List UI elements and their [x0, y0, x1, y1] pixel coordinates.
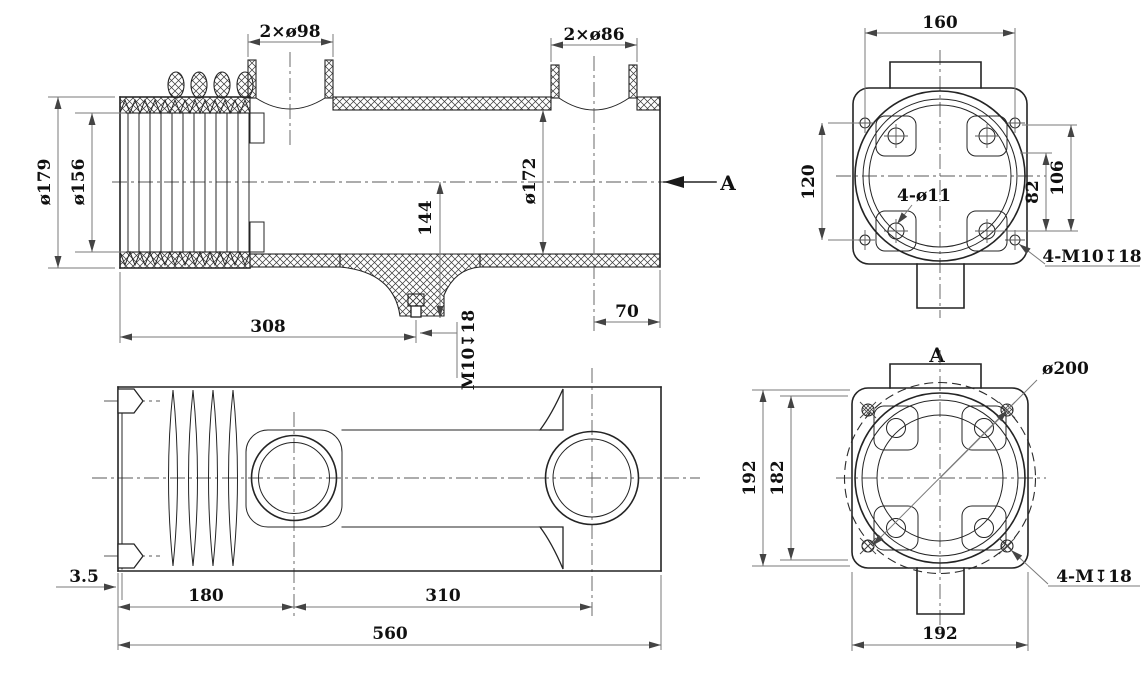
flange-bottom-stub [917, 264, 964, 308]
dim-bellows-length: 180 [188, 586, 224, 606]
dim-bore-dia: ø172 [520, 158, 540, 205]
section-arrow: A [664, 171, 736, 195]
dim-outer-dia: ø179 [35, 159, 55, 206]
drain-plug-stem [411, 306, 421, 317]
label-section-tapped: 4-M↧18 [1056, 567, 1132, 587]
dim-outer-height: 192 [740, 460, 760, 496]
bellows-loops [168, 72, 253, 98]
dim-drain-position: 308 [250, 317, 286, 337]
drain-funnel [340, 254, 480, 317]
dim-port1: 2×ø98 [259, 22, 320, 42]
inner-window-bottom [250, 222, 264, 252]
label-through-holes: 4-ø11 [897, 186, 951, 206]
flange-top-tab [890, 62, 981, 88]
dim-root-dia: ø156 [69, 159, 89, 206]
front-section-view: A 2×ø98 2×ø86 ø179 ø156 ø172 144 [35, 22, 736, 390]
flange-dimensions: 160 120 82 106 4-ø11 4-M10↧18 [799, 13, 1142, 267]
chamfer-wedge-top [540, 389, 563, 430]
dim-end-offset: 70 [615, 302, 639, 322]
port-1 [248, 52, 333, 148]
inner-window-top [250, 113, 264, 143]
flange-view: 160 120 82 106 4-ø11 4-M10↧18 [799, 13, 1142, 318]
inner-hole-tabs [876, 116, 1007, 251]
dim-drain-thread: M10↧18 [459, 310, 479, 390]
dim-hole-spacing-v: 120 [799, 164, 819, 200]
top-view-dimensions: 3.5 180 310 560 [56, 567, 661, 650]
dim-section-width: 192 [922, 624, 958, 644]
drawing-canvas: A 2×ø98 2×ø86 ø179 ø156 ø172 144 [0, 0, 1146, 683]
left-key-bottom [118, 544, 143, 568]
top-body [118, 387, 661, 571]
dim-bolt-circle: ø200 [1042, 359, 1089, 379]
front-dimensions: 2×ø98 2×ø86 ø179 ø156 ø172 144 308 70 [35, 22, 660, 390]
dim-spacing-106: 106 [1048, 160, 1068, 196]
chamfer-wedge-bottom [540, 527, 563, 569]
dim-spacing-82: 82 [1023, 180, 1043, 204]
section-bottom-stub [917, 568, 964, 614]
dim-port-spacing: 310 [425, 586, 461, 606]
section-arrow-label: A [719, 171, 736, 195]
dim-drain-height: 144 [416, 200, 436, 236]
dim-flange-width: 160 [922, 13, 958, 33]
left-key-top [118, 389, 143, 413]
top-view: 3.5 180 310 560 [56, 368, 700, 650]
drain-plug-head [408, 294, 424, 306]
section-arrowhead [664, 176, 684, 188]
thread-lines [128, 114, 249, 251]
dim-wall-thickness: 3.5 [69, 567, 99, 587]
label-tapped-holes: 4-M10↧18 [1042, 247, 1141, 267]
dim-total-length: 560 [372, 624, 408, 644]
section-top-tab [890, 364, 981, 388]
dim-inner-height: 182 [768, 460, 788, 496]
bellows-section [120, 72, 253, 268]
dim-port2: 2×ø86 [563, 25, 624, 45]
port-2 [551, 56, 637, 332]
section-a-view: A [740, 343, 1140, 651]
cad-drawing-sheet: A 2×ø98 2×ø86 ø179 ø156 ø172 144 [0, 0, 1146, 683]
